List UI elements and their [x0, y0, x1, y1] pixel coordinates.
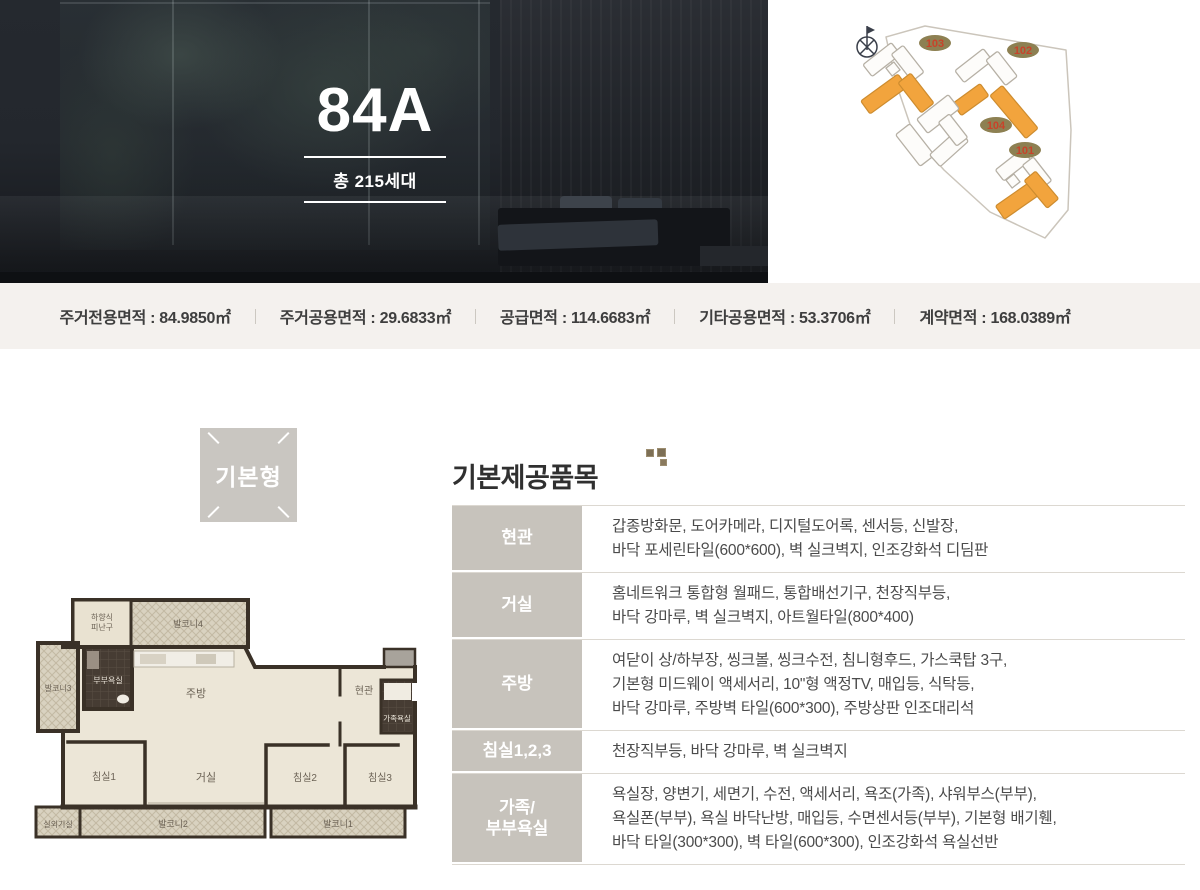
unit-type-title: 84A: [300, 80, 450, 142]
bench: [700, 246, 768, 266]
unit-info-page: 84A 총 215세대: [0, 0, 1200, 890]
room-label-bedroom1: 침실1: [92, 771, 116, 783]
corner-mark: [207, 506, 219, 518]
room-label-evac-line1: 하향식: [91, 612, 113, 622]
corner-mark: [277, 506, 289, 518]
row-content-bathrooms: 욕실장, 양변기, 세면기, 수전, 액세서리, 욕조(가족), 샤워부스(부부…: [582, 774, 1185, 864]
title-deco-square: [646, 449, 654, 457]
cooktop: [196, 654, 216, 664]
site-plan-map: 103 102 104: [768, 0, 1200, 283]
floor-plan: 하향식 피난구 발코니4 발코니3 부부욕실 주방 현관 가족욕실 침실1 거실…: [28, 595, 440, 850]
table-row: 가족/ 부부욕실 욕실장, 양변기, 세면기, 수전, 액세서리, 욕조(가족)…: [452, 774, 1185, 865]
room-label-bedroom3: 침실3: [368, 772, 392, 784]
room-label-kitchen: 주방: [186, 687, 206, 700]
row-content-living: 홈네트워크 통합형 월패드, 통합배선기구, 천장직부등, 바닥 강마루, 벽 …: [582, 573, 1185, 639]
room-label-balcony4: 발코니4: [173, 619, 203, 629]
room-label-ac-room: 실외기실: [43, 819, 72, 829]
window-frame: [60, 2, 490, 4]
building-104-label: 104: [987, 120, 1006, 132]
building-101-label: 101: [1016, 145, 1034, 157]
content-section: 기본형: [0, 349, 1200, 890]
total-units-label: 총 215세대: [300, 167, 450, 192]
row-label-entrance: 현관: [452, 506, 582, 572]
room-label-balcony2: 발코니2: [158, 819, 188, 829]
compass-icon: [857, 26, 877, 57]
corner-mark: [207, 432, 219, 444]
row-label-living: 거실: [452, 573, 582, 639]
stat-shared-area: 주거공용면적 : 29.6833㎡: [256, 304, 475, 328]
corner-mark: [277, 432, 289, 444]
stat-other-shared-area: 기타공용면적 : 53.3706㎡: [675, 304, 894, 328]
room-label-balcony3: 발코니3: [45, 683, 72, 693]
stat-supply-area: 공급면적 : 114.6683㎡: [476, 304, 674, 328]
items-table: 현관 갑종방화문, 도어카메라, 디지털도어록, 센서등, 신발장, 바닥 포세…: [452, 505, 1185, 865]
row-content-kitchen: 여닫이 상/하부장, 씽크볼, 씽크수전, 침니형후드, 가스쿡탑 3구, 기본…: [582, 640, 1185, 730]
bath-sink: [87, 651, 99, 669]
bathtub: [384, 683, 411, 700]
table-row: 현관 갑종방화문, 도어카메라, 디지털도어록, 센서등, 신발장, 바닥 포세…: [452, 506, 1185, 573]
building-104: 104: [896, 95, 1012, 167]
divider-line: [304, 201, 446, 203]
divider-line: [304, 156, 446, 158]
room-label-family-bath: 가족욕실: [383, 713, 411, 723]
hero-title-block: 84A 총 215세대: [300, 80, 450, 203]
building-103: 103: [861, 35, 951, 114]
building-103-label: 103: [926, 38, 944, 50]
photo-bottom-band: [0, 272, 768, 283]
room-label-living: 거실: [196, 771, 216, 784]
stair-core: [384, 649, 415, 667]
title-deco-square: [657, 448, 666, 457]
building-102-label: 102: [1014, 45, 1032, 57]
building-101: 101: [995, 142, 1058, 219]
row-content-entrance: 갑종방화문, 도어카메라, 디지털도어록, 센서등, 신발장, 바닥 포세린타일…: [582, 506, 1185, 572]
plan-type-badge: 기본형: [200, 428, 297, 522]
title-deco-square: [660, 459, 667, 466]
row-content-bedrooms: 천장직부등, 바닥 강마루, 벽 실크벽지: [582, 731, 1185, 773]
row-label-bedrooms: 침실1,2,3: [452, 731, 582, 773]
hero-photo: 84A 총 215세대: [0, 0, 768, 283]
sink-unit: [140, 654, 166, 664]
room-label-entrance: 현관: [355, 685, 373, 697]
table-row: 침실1,2,3 천장직부등, 바닥 강마루, 벽 실크벽지: [452, 731, 1185, 774]
row-label-kitchen: 주방: [452, 640, 582, 730]
table-row: 주방 여닫이 상/하부장, 씽크볼, 씽크수전, 침니형후드, 가스쿡탑 3구,…: [452, 640, 1185, 731]
room-label-master-bath: 부부욕실: [93, 675, 122, 685]
row-label-bathrooms: 가족/ 부부욕실: [452, 774, 582, 864]
toilet: [117, 695, 129, 704]
room-label-evac-line2: 피난구: [91, 623, 113, 632]
table-row: 거실 홈네트워크 통합형 월패드, 통합배선기구, 천장직부등, 바닥 강마루,…: [452, 573, 1185, 640]
room-label-bedroom2: 침실2: [293, 772, 317, 784]
plan-type-badge-label: 기본형: [215, 458, 281, 492]
area-stats-bar: 주거전용면적 : 84.9850㎡ 주거공용면적 : 29.6833㎡ 공급면적…: [0, 283, 1200, 349]
items-title: 기본제공품목: [452, 456, 598, 495]
site-plan: 103 102 104: [768, 0, 1200, 283]
stat-contract-area: 계약면적 : 168.0389㎡: [895, 304, 1094, 328]
entry-door-gap: [412, 683, 418, 701]
room-label-balcony1: 발코니1: [323, 819, 353, 829]
stat-exclusive-area: 주거전용면적 : 84.9850㎡: [35, 304, 254, 328]
